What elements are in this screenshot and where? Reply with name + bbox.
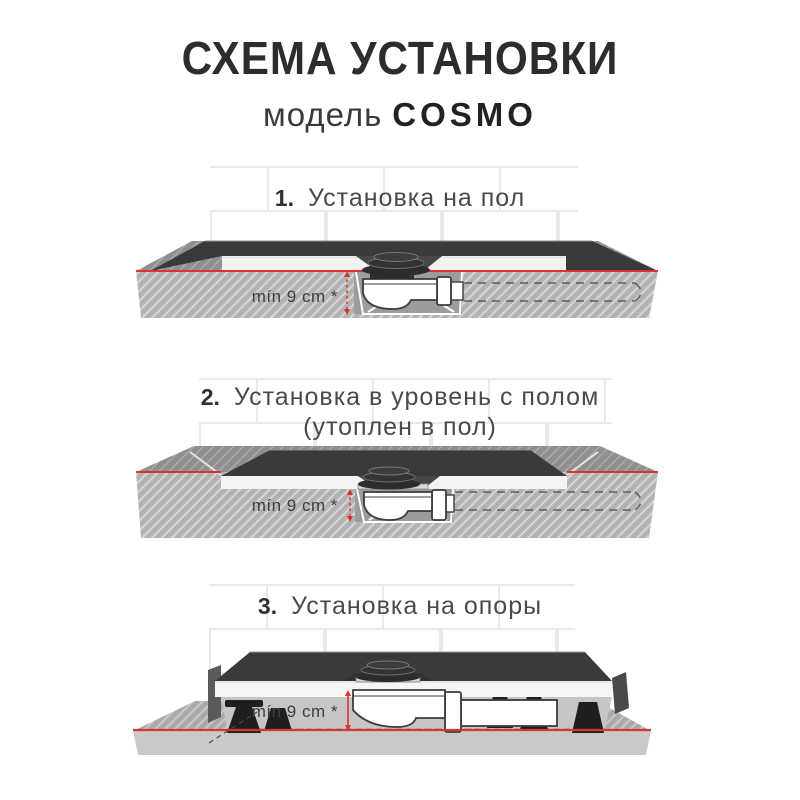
section-3-number: 3. (258, 593, 277, 620)
section-3-heading: 3. Установка на опоры (0, 592, 800, 621)
diagram-supports-installation (105, 620, 695, 765)
section-2-subtitle: (утоплен в пол) (0, 413, 800, 442)
section-1-title: Установка на пол (308, 184, 525, 213)
diagram-flush-installation (130, 440, 670, 545)
page-title: СХЕМА УСТАНОВКИ (32, 31, 768, 85)
model-line: модельCOSMO (0, 96, 800, 134)
diagram-floor-installation (130, 230, 670, 330)
section-3-title: Установка на опоры (291, 592, 542, 621)
min-depth-label-3: mín 9 cm * (238, 702, 338, 722)
section-1-heading: 1. Установка на пол (0, 184, 800, 213)
model-name: COSMO (392, 96, 537, 133)
model-label: модель (263, 96, 382, 133)
installation-scheme-page: СХЕМА УСТАНОВКИ модельCOSMO 1. Установка… (0, 0, 800, 800)
min-depth-label-1: mín 9 cm * (233, 287, 338, 307)
section-1-number: 1. (275, 185, 294, 212)
section-2-heading: 2. Установка в уровень с полом (0, 383, 800, 412)
min-depth-label-2: mín 9 cm * (233, 496, 338, 516)
section-2-title: Установка в уровень с полом (234, 383, 599, 412)
section-2-number: 2. (201, 384, 220, 411)
